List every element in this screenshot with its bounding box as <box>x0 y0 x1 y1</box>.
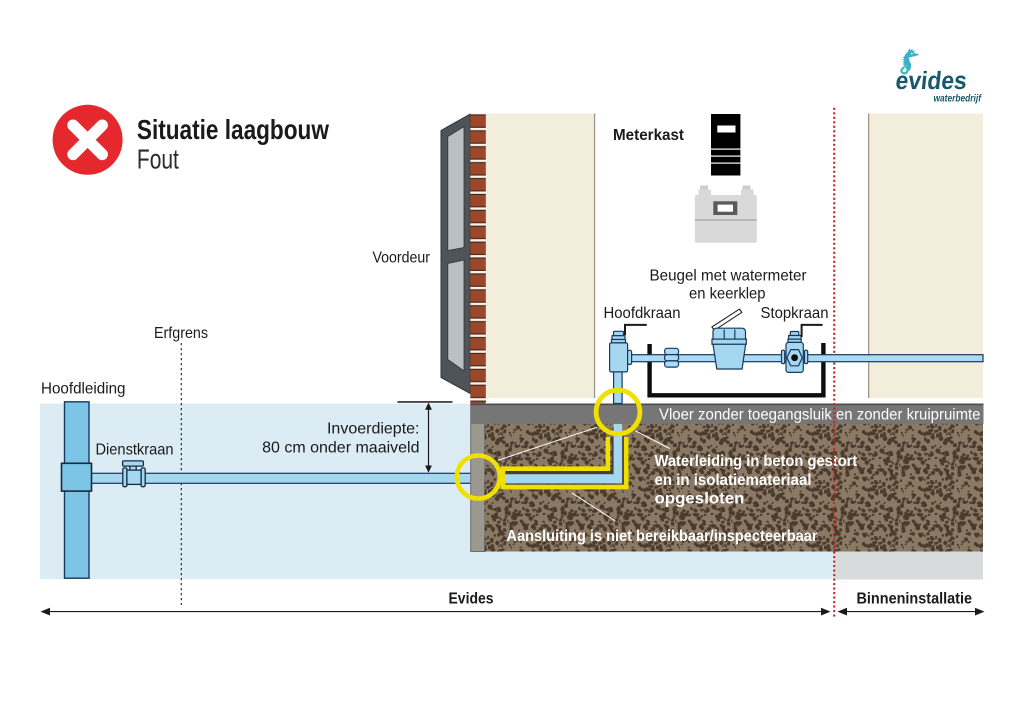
svg-text:Vloer zonder toegangsluik en z: Vloer zonder toegangsluik en zonder krui… <box>659 407 981 424</box>
svg-text:Evides: Evides <box>449 591 494 608</box>
svg-text:evides: evides <box>894 67 968 95</box>
svg-text:Fout: Fout <box>137 144 179 175</box>
svg-text:Beugel met watermeter: Beugel met watermeter <box>650 268 808 285</box>
svg-text:Situatie laagbouw: Situatie laagbouw <box>137 114 329 145</box>
svg-text:Meterkast: Meterkast <box>613 127 685 144</box>
svg-text:Stopkraan: Stopkraan <box>761 305 829 322</box>
svg-text:Erfgrens: Erfgrens <box>154 325 208 342</box>
svg-text:Invoerdiepte:: Invoerdiepte: <box>327 421 420 438</box>
svg-text:en in isolatiemateriaal: en in isolatiemateriaal <box>655 472 812 489</box>
svg-text:Waterleiding in beton gestort: Waterleiding in beton gestort <box>655 453 858 470</box>
svg-text:Aansluiting is niet bereikbaar: Aansluiting is niet bereikbaar/inspectee… <box>507 528 818 545</box>
svg-text:Hoofdkraan: Hoofdkraan <box>604 305 681 322</box>
svg-text:Dienstkraan: Dienstkraan <box>96 442 174 459</box>
svg-text:Hoofdleiding: Hoofdleiding <box>41 381 126 398</box>
svg-text:Binneninstallatie: Binneninstallatie <box>857 591 973 608</box>
svg-text:waterbedrijf: waterbedrijf <box>934 93 983 105</box>
svg-text:80 cm onder maaiveld: 80 cm onder maaiveld <box>262 440 419 457</box>
svg-text:Voordeur: Voordeur <box>373 250 431 267</box>
svg-text:en keerklep: en keerklep <box>689 286 766 303</box>
svg-text:opgesloten: opgesloten <box>655 491 745 508</box>
